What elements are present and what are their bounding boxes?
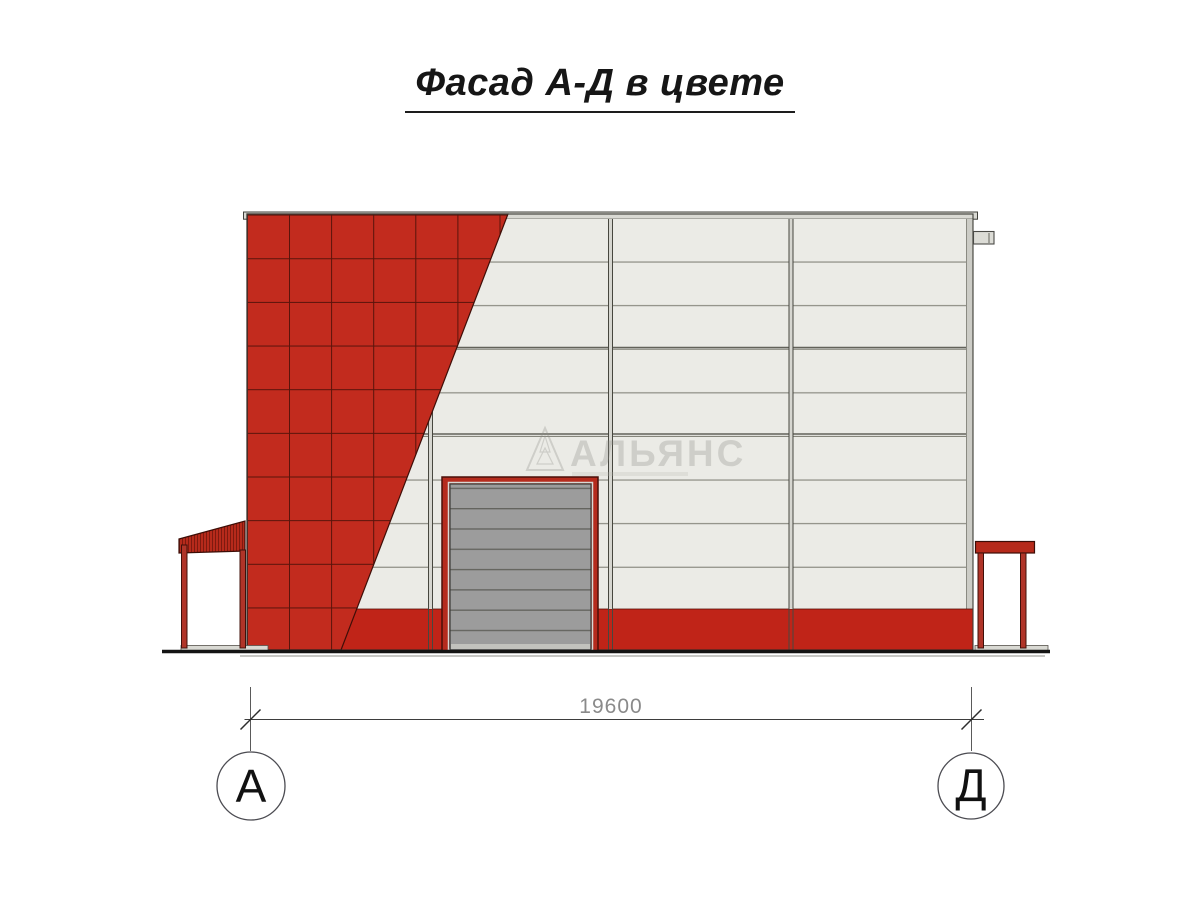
plinth-strip — [247, 609, 973, 650]
right-canopy — [975, 542, 1048, 653]
right-canopy-post-outer — [1021, 553, 1027, 648]
left-canopy-roof — [179, 521, 245, 553]
axis-letter-left: А — [236, 760, 267, 812]
drawing-canvas: Фасад А-Д в цвете — [0, 0, 1200, 900]
right-canopy-roof — [976, 542, 1035, 554]
left-canopy-post-outer — [182, 545, 188, 648]
garage-door-panels — [450, 484, 591, 650]
left-canopy-post-inner — [240, 550, 246, 648]
right-canopy-post-inner — [978, 553, 984, 648]
dimension-value: 19600 — [579, 695, 642, 718]
mullion-right — [789, 219, 794, 650]
corner-trim — [967, 219, 974, 609]
axis-letter-right: Д — [955, 759, 986, 811]
garage-door — [442, 477, 598, 651]
scupper-outlet — [974, 232, 995, 245]
axis-marker-left: А — [217, 752, 285, 820]
dimension-string: 19600 — [241, 687, 985, 751]
watermark-subtext-blur — [572, 472, 688, 476]
axis-marker-right: Д — [938, 753, 1004, 819]
ground-line — [162, 652, 1050, 657]
facade-elevation-drawing: АЛЬЯНС — [0, 0, 1200, 900]
watermark-text: АЛЬЯНС — [570, 433, 746, 474]
